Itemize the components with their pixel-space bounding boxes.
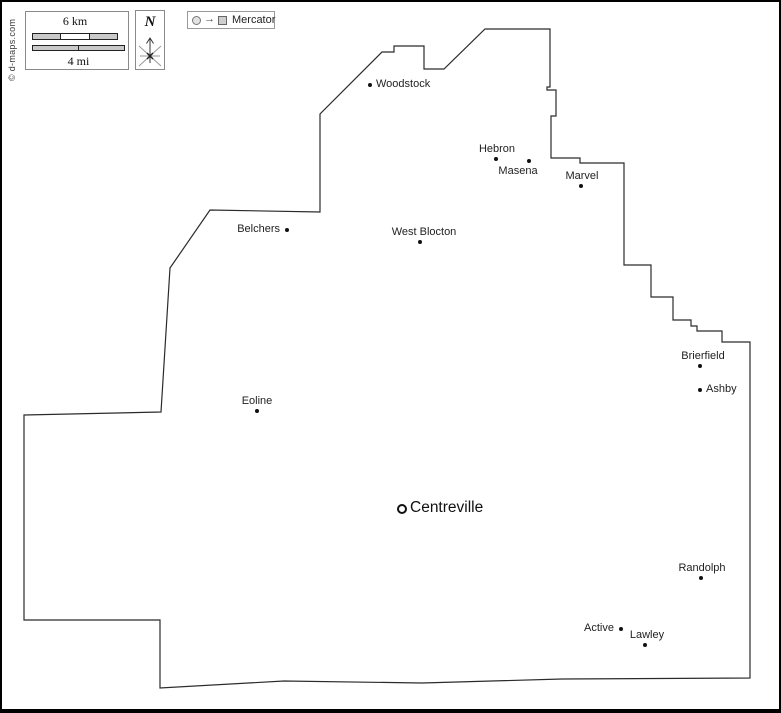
town-label: Brierfield xyxy=(681,350,724,362)
town-dot-icon xyxy=(643,643,647,647)
county-seat-marker-icon xyxy=(397,504,407,514)
scale-segment xyxy=(60,34,88,39)
town-dot-icon xyxy=(619,627,623,631)
town-label: Hebron xyxy=(479,143,515,155)
town-dot-icon xyxy=(285,228,289,232)
scale-bar-km xyxy=(32,33,118,40)
county-boundary xyxy=(24,29,750,688)
copyright-text: © d-maps.com xyxy=(7,19,17,81)
scale-km-label: 6 km xyxy=(32,14,118,29)
scale-box: 6 km 4 mi xyxy=(25,11,129,70)
town-label: Woodstock xyxy=(376,78,430,90)
town-label: Lawley xyxy=(630,629,664,641)
town-dot-icon xyxy=(527,159,531,163)
town-dot-icon xyxy=(368,83,372,87)
county-map xyxy=(2,2,781,713)
scale-segment xyxy=(33,46,78,50)
town-label: West Blocton xyxy=(392,226,457,238)
map-page: © d-maps.com 6 km 4 mi N → Me xyxy=(0,0,781,713)
town-label: Eoline xyxy=(242,395,273,407)
scale-segment xyxy=(89,34,117,39)
town-label: Masena xyxy=(498,165,537,177)
town-dot-icon xyxy=(698,364,702,368)
town-label: Ashby xyxy=(706,383,737,395)
scale-bar-mi xyxy=(32,45,125,51)
town-dot-icon xyxy=(418,240,422,244)
town-label: Marvel xyxy=(565,170,598,182)
scale-segment xyxy=(33,34,60,39)
town-dot-icon xyxy=(494,157,498,161)
town-label: Belchers xyxy=(237,223,280,235)
town-dot-icon xyxy=(698,388,702,392)
scale-mi-label: 4 mi xyxy=(32,54,125,69)
town-dot-icon xyxy=(255,409,259,413)
arrow-right-icon: → xyxy=(204,14,215,25)
projection-label: Mercator xyxy=(232,14,275,26)
town-label: Randolph xyxy=(678,562,725,574)
town-label: Active xyxy=(584,622,614,634)
compass-box: N xyxy=(135,10,165,70)
projection-legend: → Mercator xyxy=(187,11,275,29)
compass-north-label: N xyxy=(136,15,164,30)
projection-square-icon xyxy=(218,16,227,25)
compass-rose-icon xyxy=(137,35,163,67)
town-label: Centreville xyxy=(410,499,483,517)
town-dot-icon xyxy=(579,184,583,188)
globe-circle-icon xyxy=(192,16,201,25)
scale-segment xyxy=(78,46,124,50)
town-dot-icon xyxy=(699,576,703,580)
